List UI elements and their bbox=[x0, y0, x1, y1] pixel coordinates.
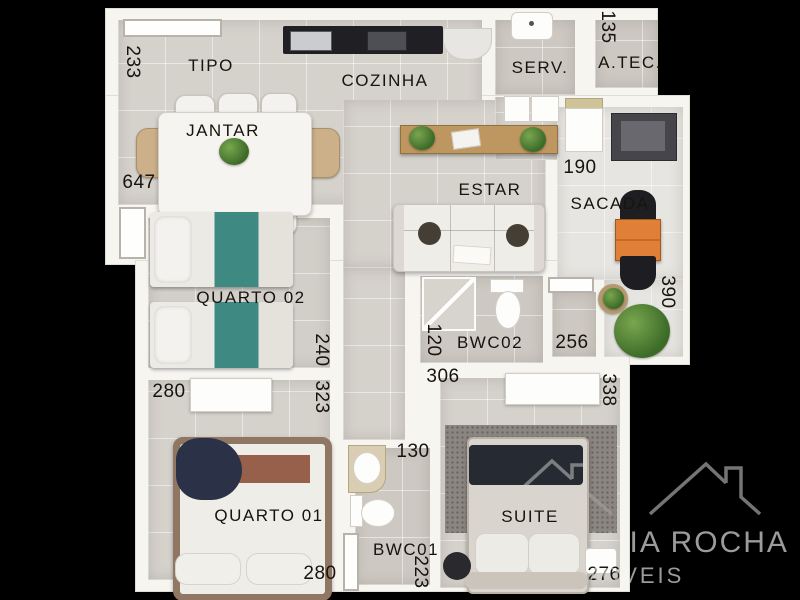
dimension-label: 130 bbox=[396, 441, 429, 463]
washer bbox=[504, 96, 530, 122]
room-label-quarto02: QUARTO 02 bbox=[196, 288, 305, 308]
sofa-pillow bbox=[506, 224, 529, 247]
dimension-label: 647 bbox=[122, 172, 155, 194]
sink-basin bbox=[353, 452, 381, 484]
dimension-label: 135 bbox=[596, 10, 618, 43]
window-bedroom2-left bbox=[119, 207, 146, 259]
dimension-label: 256 bbox=[555, 332, 588, 354]
room-label-quarto01: QUARTO 01 bbox=[214, 506, 323, 526]
dimension-label: 323 bbox=[310, 380, 332, 413]
floor-hallway bbox=[343, 268, 405, 440]
house-logo-icon bbox=[492, 456, 792, 518]
room-label-estar: ESTAR bbox=[459, 180, 522, 200]
kitchen-cooktop bbox=[367, 31, 407, 51]
watermark-subtitle: IMÓVEIS bbox=[572, 563, 685, 589]
dimension-label: 306 bbox=[426, 366, 459, 388]
room-label-jantar: JANTAR bbox=[186, 121, 260, 141]
bed-footboard-cushion bbox=[175, 553, 241, 585]
sideboard-plant-icon bbox=[409, 126, 435, 150]
room-label-tipo: TIPO bbox=[188, 56, 234, 76]
room-label-cozinha: COZINHA bbox=[342, 71, 429, 91]
wardrobe bbox=[190, 378, 272, 412]
dimension-label: 223 bbox=[409, 555, 431, 588]
dimension-label: 338 bbox=[597, 373, 619, 406]
dimension-label: 280 bbox=[303, 563, 336, 585]
sofa-pillow bbox=[418, 222, 441, 245]
floor-plant-icon bbox=[614, 304, 670, 358]
floor-plan-canvas: TIPO COZINHA SERV. A.TEC. JANTAR ESTAR S… bbox=[0, 0, 800, 600]
kitchen-sink bbox=[290, 31, 332, 51]
single-bed-pillow bbox=[154, 306, 192, 364]
toilet-bowl bbox=[495, 291, 521, 329]
single-bed-pillow bbox=[154, 216, 192, 283]
room-label-serv: SERV. bbox=[512, 58, 569, 78]
sideboard-plant-icon bbox=[520, 127, 546, 152]
potted-plant-leaves-icon bbox=[603, 288, 624, 309]
bed-footboard-cushion bbox=[246, 553, 312, 585]
laundry-sink-drain bbox=[529, 21, 534, 26]
toilet-bowl bbox=[361, 499, 395, 527]
dimension-label: 390 bbox=[656, 275, 678, 308]
dimension-label: 240 bbox=[310, 333, 332, 366]
window-bathroom1-left bbox=[343, 533, 359, 591]
balcony-table bbox=[615, 219, 661, 261]
sofa-blanket bbox=[452, 245, 491, 266]
barbecue-grill-inner bbox=[621, 121, 665, 151]
room-label-sacada: SACADA bbox=[571, 194, 650, 214]
room-label-bwc02: BWC02 bbox=[457, 333, 523, 353]
wardrobe bbox=[505, 373, 600, 405]
dimension-label: 120 bbox=[422, 323, 444, 356]
utility-cabinet bbox=[565, 108, 603, 152]
laundry-sink bbox=[511, 12, 553, 40]
dryer bbox=[531, 96, 559, 122]
window-top-left bbox=[123, 19, 222, 37]
watermark-name: MARIVANIA ROCHA bbox=[481, 526, 789, 560]
dimension-label: 280 bbox=[152, 381, 185, 403]
sideboard-books bbox=[451, 128, 481, 150]
room-label-atec: A.TEC. bbox=[598, 53, 662, 73]
bed-headboard bbox=[464, 572, 588, 589]
bed-blanket bbox=[176, 438, 242, 500]
balcony-chair bbox=[620, 256, 656, 290]
round-side-table bbox=[443, 552, 471, 580]
dimension-label: 190 bbox=[563, 157, 596, 179]
centerpiece-plant-icon bbox=[219, 138, 249, 165]
window-deposit-balcony bbox=[548, 277, 594, 293]
dimension-label: 233 bbox=[121, 45, 143, 78]
